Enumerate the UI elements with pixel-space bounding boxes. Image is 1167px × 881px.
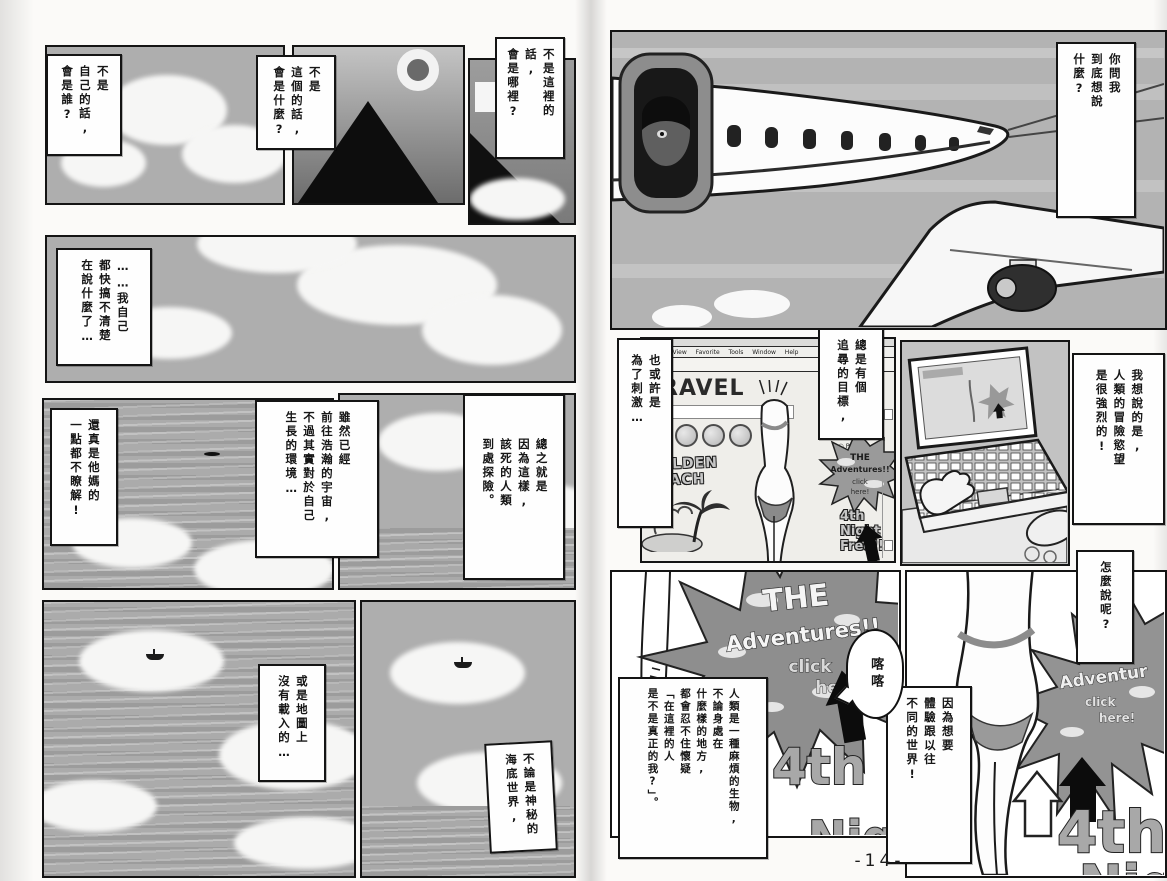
- round-site-icon: [675, 424, 698, 447]
- ad-adventures: Adventures!!: [830, 465, 889, 474]
- cloud: [470, 178, 565, 220]
- big-ad-night1: 4th: [772, 738, 866, 796]
- caption-text: ……我自己 都快搞不清楚 在說什麼了…: [77, 259, 130, 355]
- caption-bubble: 怎麼說呢?: [1076, 550, 1134, 664]
- right-ad-here: here!: [1099, 711, 1135, 725]
- laptop-illustration: [902, 342, 1067, 563]
- ad-click: click: [852, 478, 869, 486]
- caption-bubble: 我想說的是, 人類的冒險慾望 是很強烈的!: [1072, 353, 1165, 525]
- big-ad-night2: Night: [808, 811, 898, 835]
- caption-bubble: 也或許是 為了刺激…: [617, 338, 673, 528]
- porthole-ring: [397, 49, 439, 91]
- page-number: -14-: [827, 851, 932, 871]
- outline-arrow-icon: [1014, 772, 1061, 836]
- cloud-puff: [714, 290, 790, 318]
- ad-here: here!: [851, 488, 870, 496]
- caption-text: 還真是他媽的 一點都不瞭解!: [66, 419, 102, 535]
- caption-bubble: 不論是神秘的 海底世界,: [484, 740, 558, 853]
- caption-text: 因為想要 體驗跟以往 不同的世界!: [902, 697, 955, 853]
- big-ad-the: THE: [761, 578, 830, 620]
- right-ad-night2: Night: [1079, 855, 1164, 875]
- left-page-edge-shading: [0, 0, 34, 881]
- sound-effect-text: 喀喀: [865, 657, 885, 691]
- caption-bubble: 人類是一種麻煩的生物, 不論身處在 什麼樣的地方, 都會忍不住懷疑 「在這裡的人…: [618, 677, 768, 859]
- sound-effect-bubble: 喀喀: [846, 629, 904, 719]
- caption-bubble: 雖然已經 前往浩瀚的宇宙, 不過其實對於自己 生長的環境…: [255, 400, 379, 558]
- caption-text: 不論是神秘的 海底世界,: [501, 752, 541, 842]
- manga-spread: 不是 自己的話, 會是誰? 不是 這個的話, 會是什麼? 不是這裡的話, 會是哪…: [0, 0, 1167, 881]
- panel-laptop: [900, 340, 1070, 566]
- round-site-icon: [702, 424, 725, 447]
- caption-text: 我想說的是, 人類的冒險慾望 是很強烈的!: [1092, 369, 1145, 514]
- big-ad-click: click: [788, 657, 832, 677]
- caption-text: 你問我 到底想說 什麼?: [1069, 53, 1122, 207]
- caption-bubble: 或是地圖上 沒有載入的…: [258, 664, 326, 782]
- caption-bubble: 不是這裡的話, 會是哪裡?: [495, 37, 565, 159]
- caption-text: 總是有個 追尋的目標,: [833, 339, 869, 429]
- caption-text: 不是 這個的話, 會是什麼?: [269, 66, 322, 139]
- cloud: [42, 780, 157, 832]
- ad-the: THE: [850, 453, 870, 463]
- tiny-plane-silhouette: [204, 452, 220, 456]
- bikini-woman-illustration: [734, 380, 816, 563]
- caption-text: 人類是一種麻煩的生物, 不論身處在 什麼樣的地方, 都會忍不住懷疑 「在這裡的人…: [644, 688, 742, 848]
- cloud: [79, 630, 224, 692]
- right-ad-click: click: [1085, 695, 1116, 709]
- caption-bubble: 因為想要 體驗跟以往 不同的世界!: [886, 686, 972, 864]
- caption-bubble: 總之就是 因為這樣, 該死的人類 到處探險。: [463, 394, 565, 580]
- engine-intake: [996, 278, 1016, 298]
- caption-text: 雖然已經 前往浩瀚的宇宙, 不過其實對於自己 生長的環境…: [281, 411, 352, 547]
- cloud: [234, 817, 356, 869]
- caption-text: 也或許是 為了刺激…: [627, 354, 663, 517]
- caption-bubble: 不是 自己的話, 會是誰?: [46, 54, 122, 156]
- porthole-inset: [620, 54, 712, 212]
- caption-text: 不是 自己的話, 會是誰?: [57, 65, 110, 145]
- caption-bubble: 你問我 到底想說 什麼?: [1056, 42, 1136, 218]
- caption-text: 總之就是 因為這樣, 該死的人類 到處探險。: [478, 438, 549, 569]
- cloud: [422, 295, 562, 365]
- caption-text: 或是地圖上 沒有載入的…: [274, 675, 310, 771]
- caption-bubble: 還真是他媽的 一點都不瞭解!: [50, 408, 118, 546]
- page-gutter-shadow: [575, 0, 607, 881]
- caption-bubble: 總是有個 追尋的目標,: [818, 328, 884, 440]
- caption-text: 怎麼說呢?: [1096, 561, 1114, 653]
- caption-bubble: 不是 這個的話, 會是什麼?: [256, 55, 336, 150]
- cloud: [390, 642, 525, 704]
- caption-text: 不是這裡的話, 會是哪裡?: [503, 48, 556, 148]
- caption-bubble: ……我自己 都快搞不清楚 在說什麼了…: [56, 248, 152, 366]
